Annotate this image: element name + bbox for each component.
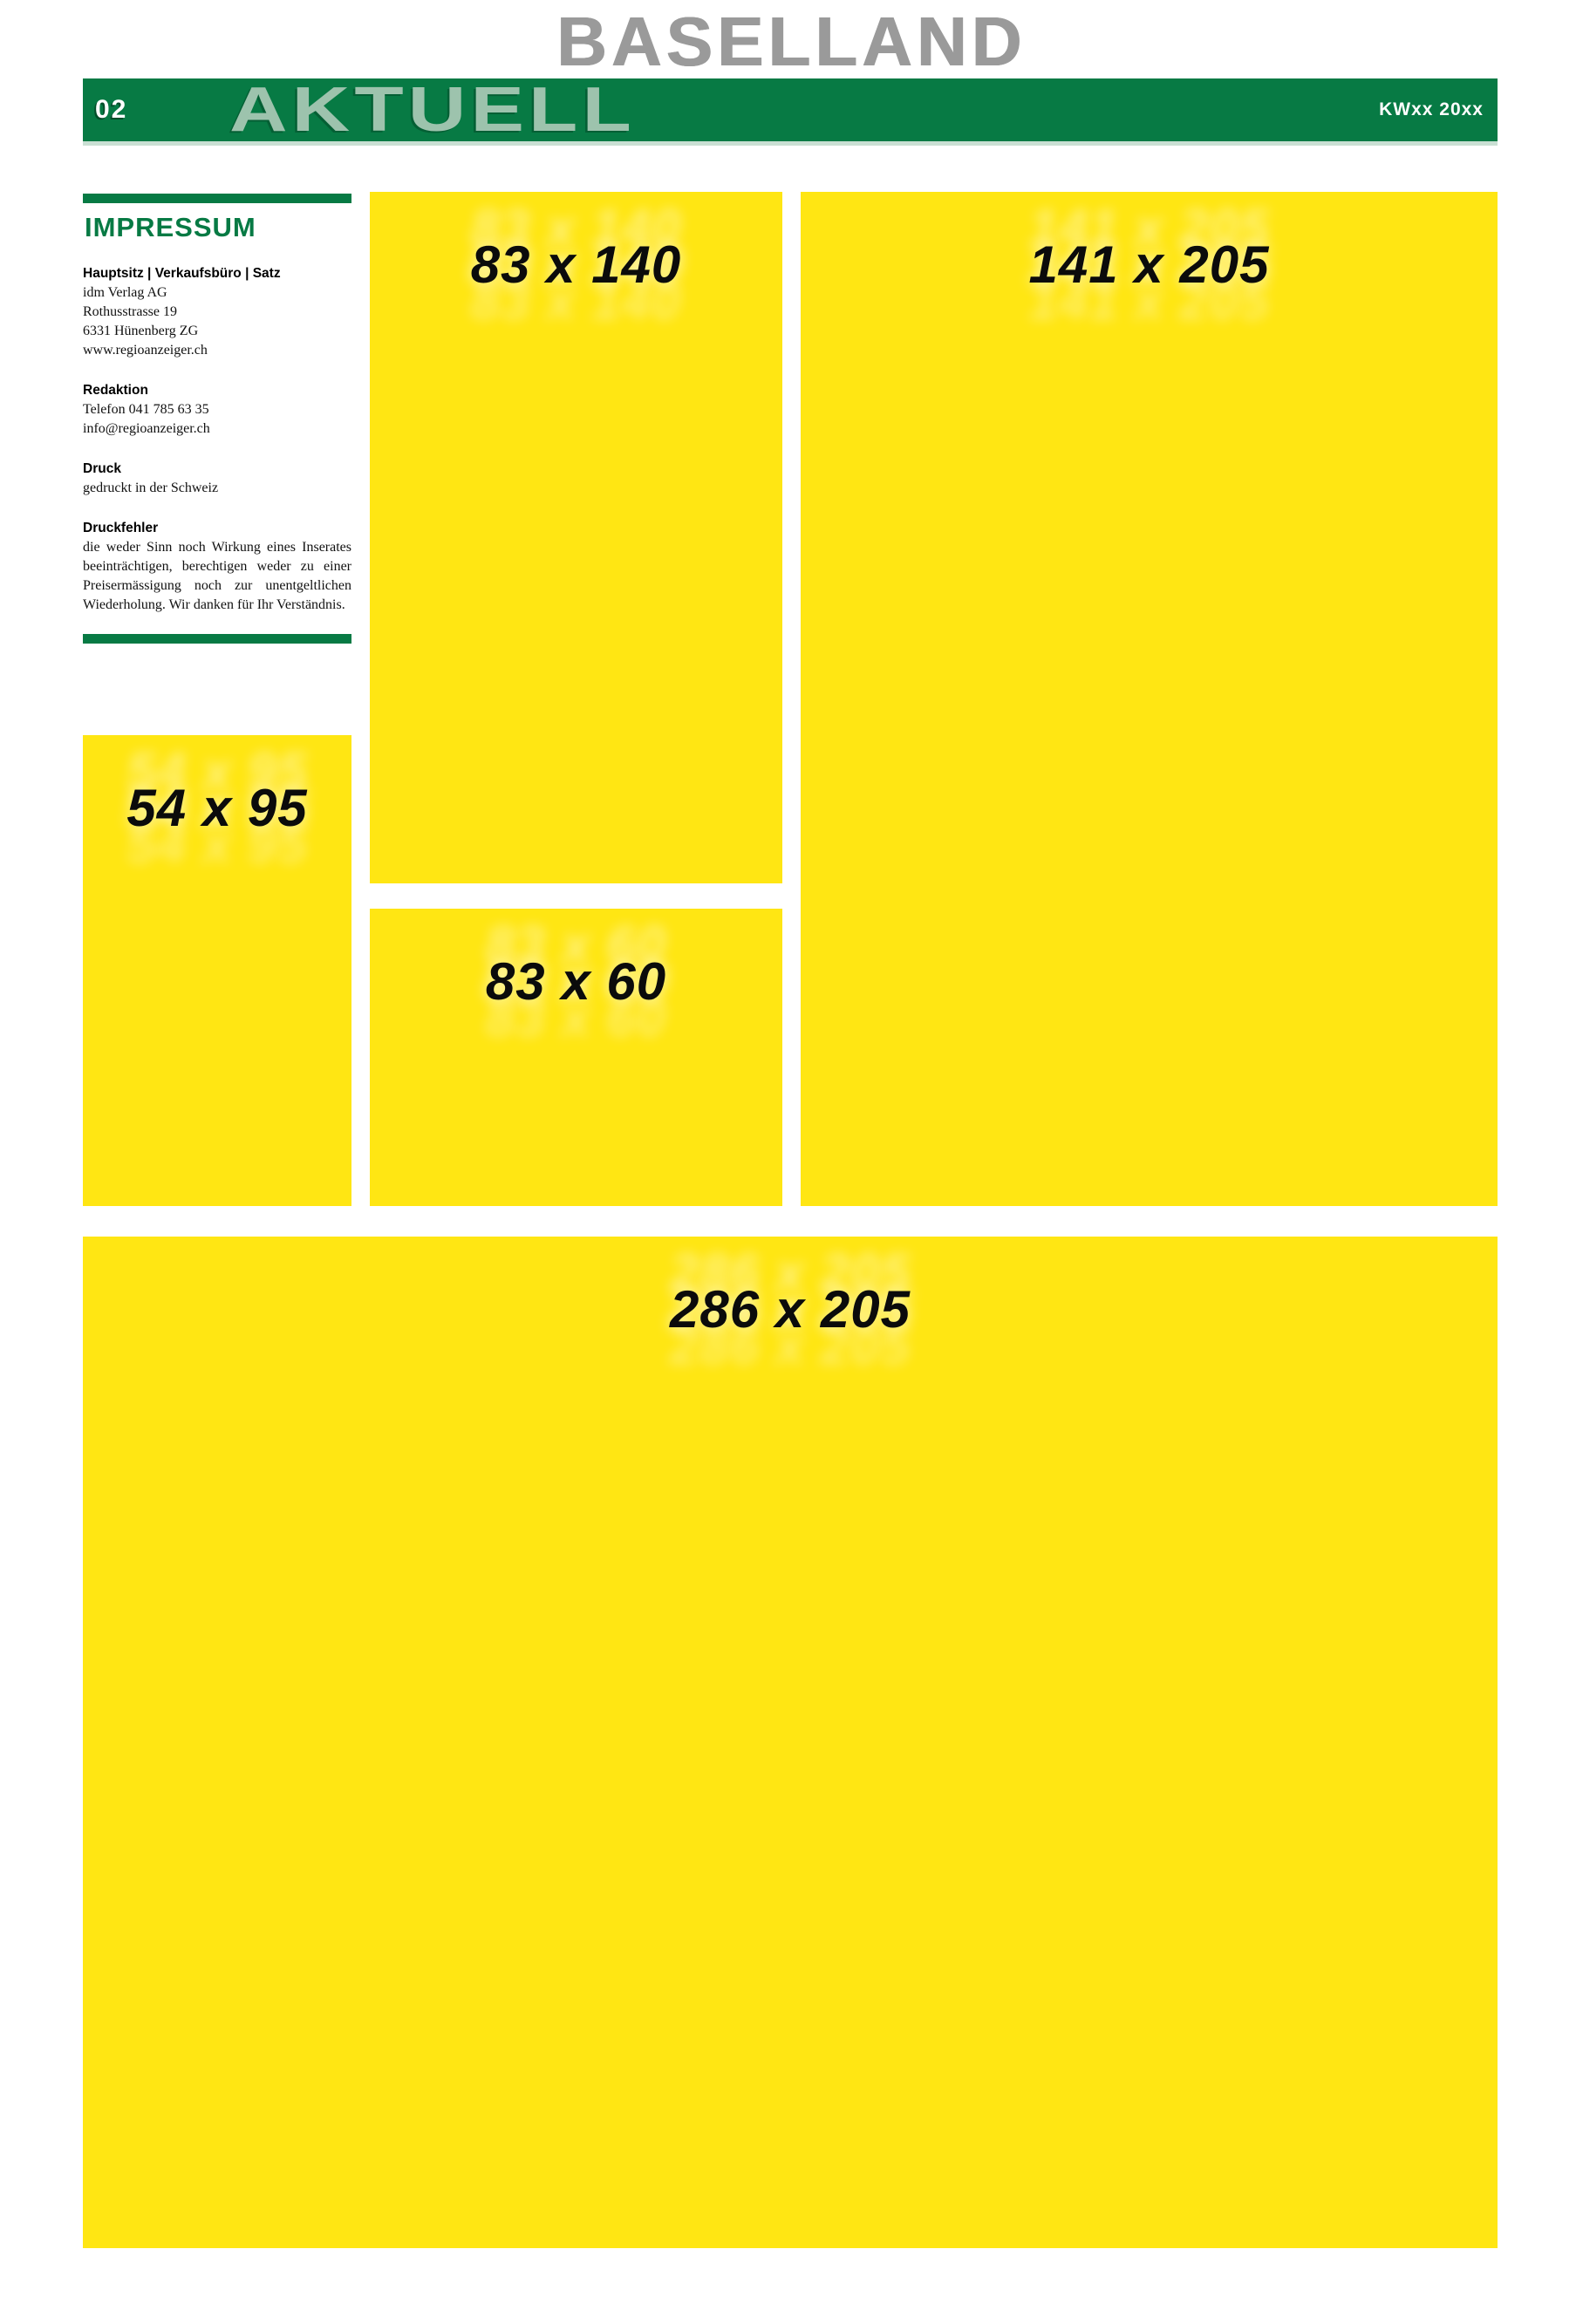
impressum-line: gedruckt in der Schweiz bbox=[83, 479, 351, 498]
impressum-column: IMPRESSUM Hauptsitz | Verkaufsbüro | Sat… bbox=[83, 194, 351, 644]
masthead-region-title: BASELLAND bbox=[0, 5, 1583, 78]
impressum-line: info@regioanzeiger.ch bbox=[83, 419, 351, 439]
ad-slot-size-label: 83 x 60 bbox=[486, 954, 666, 1010]
ad-slot-size-label: 83 x 140 bbox=[471, 237, 682, 293]
ad-slot-286x205: 286 x 205 bbox=[83, 1237, 1498, 2248]
impressum-line: Telefon 041 785 63 35 bbox=[83, 400, 351, 419]
page-number: 02 bbox=[95, 95, 127, 125]
impressum-body: Hauptsitz | Verkaufsbüro | Satz idm Verl… bbox=[83, 264, 351, 615]
ad-slot-size-label: 286 x 205 bbox=[670, 1282, 911, 1338]
impressum-paragraph: die weder Sinn noch Wirkung eines Insera… bbox=[83, 538, 351, 615]
impressum-bottom-rule bbox=[83, 634, 351, 644]
ad-slot-54x95: 54 x 95 bbox=[83, 735, 351, 1206]
impressum-line: idm Verlag AG bbox=[83, 283, 351, 303]
ad-slot-83x140: 83 x 140 bbox=[370, 192, 782, 883]
impressum-top-rule bbox=[83, 194, 351, 203]
impressum-section-hauptsitz: Hauptsitz | Verkaufsbüro | Satz idm Verl… bbox=[83, 264, 351, 360]
impressum-section-redaktion: Redaktion Telefon 041 785 63 35 info@reg… bbox=[83, 381, 351, 439]
section-title-text: AKTUELL bbox=[229, 78, 636, 141]
impressum-section-header: Druckfehler bbox=[83, 519, 351, 538]
newspaper-page: BASELLAND 02 AKTUELL KWxx 20xx IMPRESSUM… bbox=[0, 0, 1583, 2324]
impressum-title: IMPRESSUM bbox=[85, 213, 351, 242]
ad-slot-141x205: 141 x 205 bbox=[801, 192, 1498, 1206]
impressum-section-druckfehler: Druckfehler die weder Sinn noch Wirkung … bbox=[83, 519, 351, 615]
impressum-line: 6331 Hünenberg ZG bbox=[83, 322, 351, 341]
impressum-section-header: Hauptsitz | Verkaufsbüro | Satz bbox=[83, 264, 351, 283]
impressum-line: www.regioanzeiger.ch bbox=[83, 341, 351, 360]
issue-week-stamp: KWxx 20xx bbox=[1379, 99, 1484, 120]
section-title: AKTUELL bbox=[229, 78, 547, 141]
impressum-section-druck: Druck gedruckt in der Schweiz bbox=[83, 460, 351, 498]
ad-slot-size-label: 54 x 95 bbox=[126, 780, 307, 836]
ad-slot-size-label: 141 x 205 bbox=[1029, 237, 1270, 293]
section-header-bar: 02 AKTUELL KWxx 20xx bbox=[83, 78, 1498, 141]
impressum-line: Rothusstrasse 19 bbox=[83, 303, 351, 322]
impressum-section-header: Redaktion bbox=[83, 381, 351, 400]
ad-slot-83x60: 83 x 60 bbox=[370, 909, 782, 1206]
impressum-section-header: Druck bbox=[83, 460, 351, 479]
